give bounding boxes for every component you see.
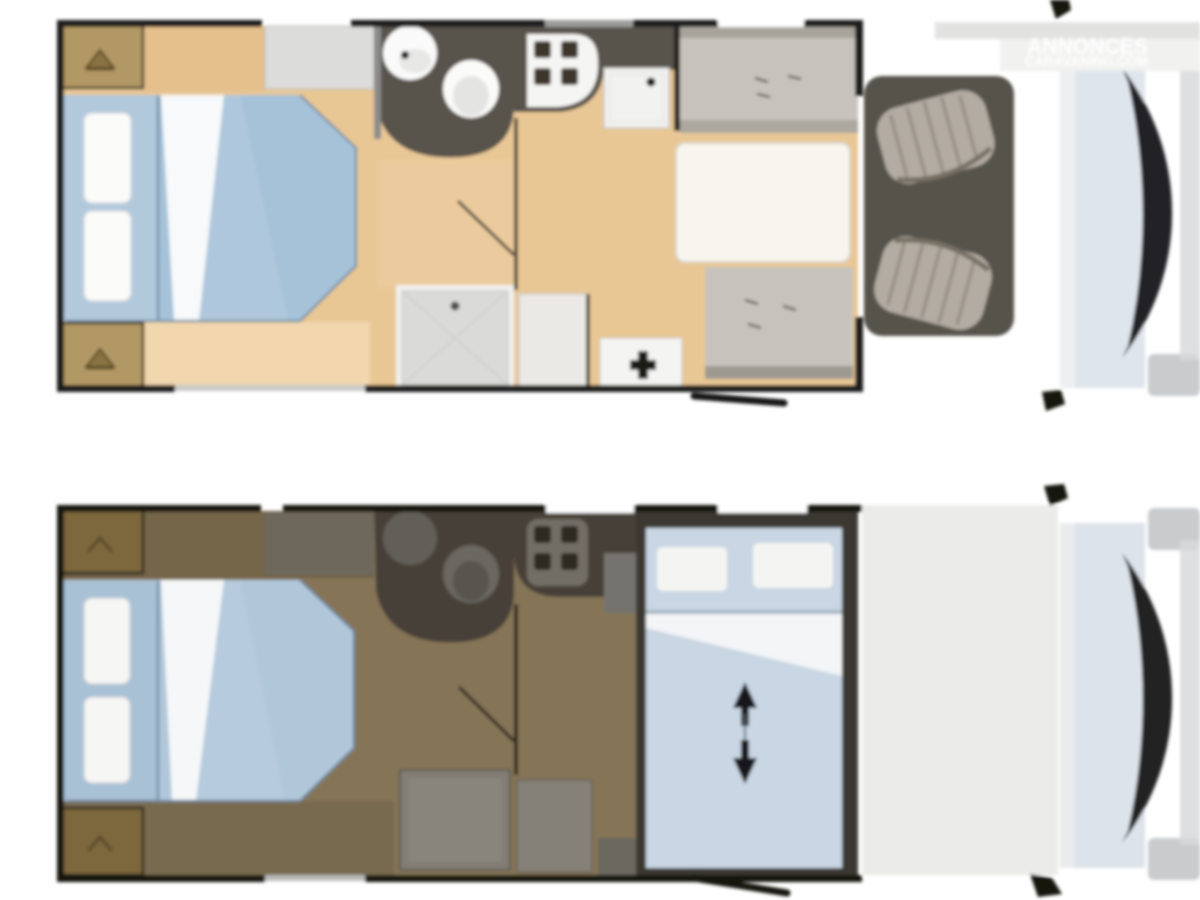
- svg-text:CARAVANING.COM: CARAVANING.COM: [1025, 54, 1148, 70]
